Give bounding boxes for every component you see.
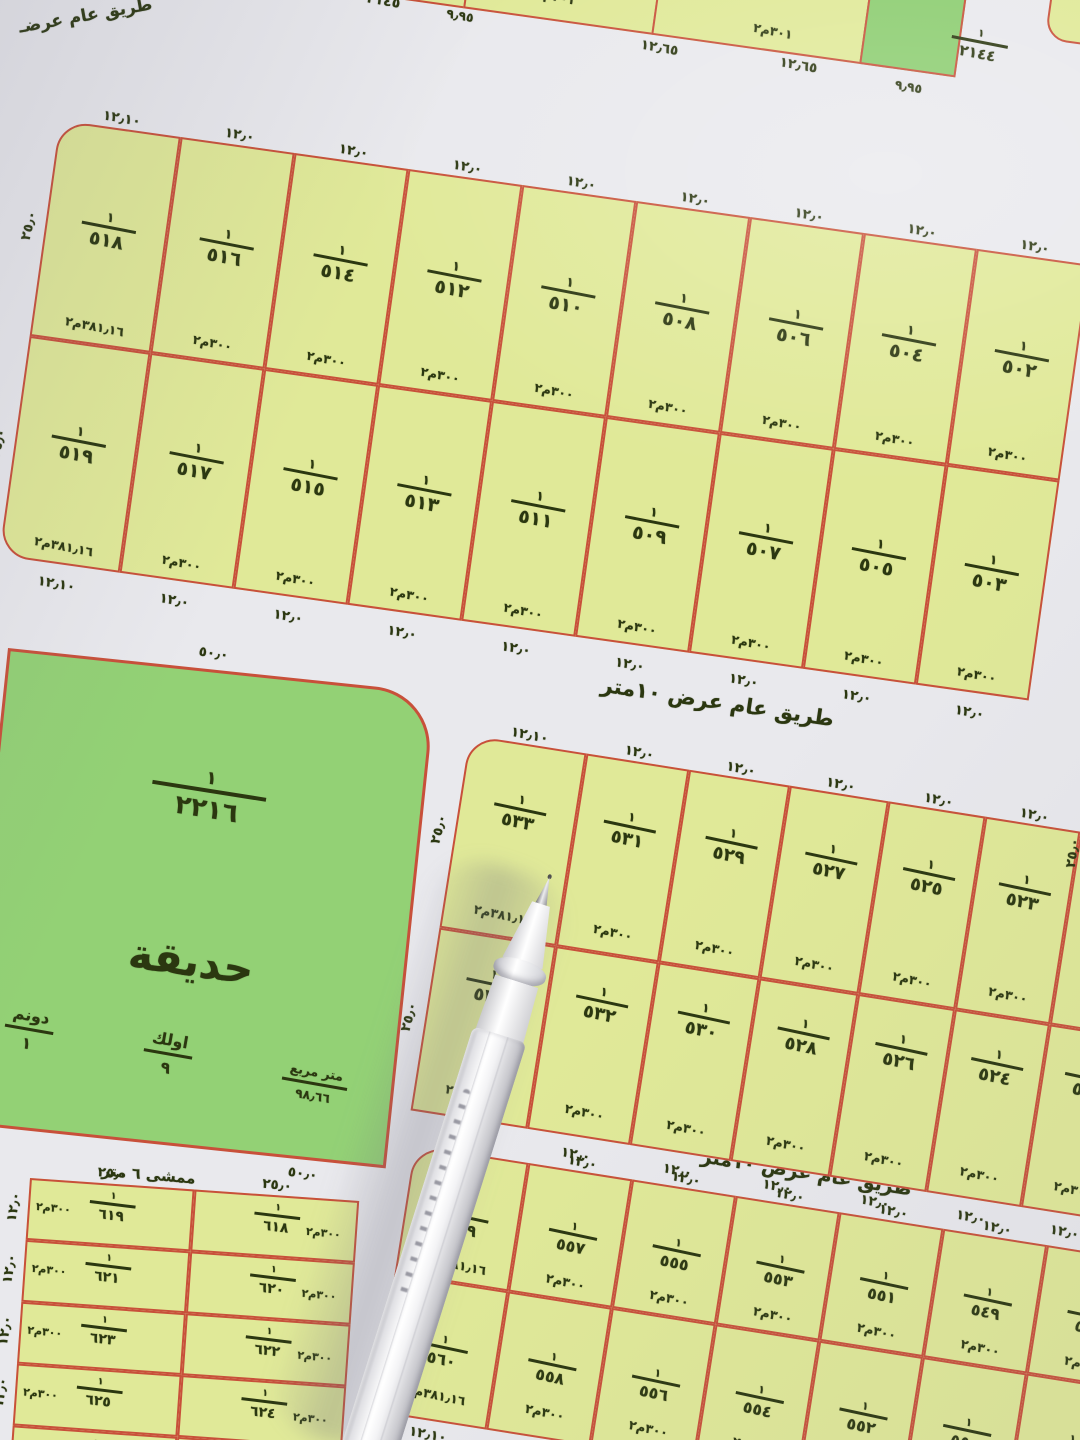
plot-cell: ١٦٢٣٣٠٠م٢: [17, 1302, 186, 1375]
dimension-label: ١٢٫٠: [385, 622, 417, 643]
plot-number: ١٥٢٨: [773, 1013, 833, 1061]
plot-number: ١٥١٩: [47, 421, 108, 470]
plot-area-label: ٣٠٠م٢: [665, 1117, 707, 1140]
plot-area-label: ٣٠٠م٢: [35, 1200, 71, 1217]
plot-number: ١٥٠٣: [960, 549, 1021, 598]
unit-olk: اولك ٩: [140, 1027, 196, 1082]
plot-area-label: ٣٠٠م٢: [305, 348, 347, 370]
dimension-label: ١٢٫٠: [679, 189, 711, 210]
plot-area-label: ٣٠٠م٢: [793, 953, 835, 976]
plot-cell: ١٥٥١٣٠٠م٢: [819, 1212, 943, 1357]
plot-number: ١٥٥٠: [939, 1412, 994, 1440]
plot-area-label: ٣٠٠م٢: [765, 1132, 807, 1155]
dimension-label: ٢٥٫٠: [427, 812, 450, 845]
dimension-label: ١٢٫٠: [0, 1253, 20, 1285]
fraction-denominator: ٥٤٧: [1063, 1310, 1080, 1342]
plot-number: ١٥٢٩: [701, 822, 761, 870]
plot-number: ١٥٥٣: [752, 1249, 807, 1293]
plot-number: ١٥٢٤: [967, 1043, 1027, 1091]
plot-number: ١٥١٠: [537, 271, 598, 320]
plot-cell: ١٥٥٦٣٠٠م٢: [590, 1308, 716, 1440]
dimension-label: ١٢٫٠: [953, 702, 985, 723]
plot-cell: ١٥٥٤٣٠٠م٢: [694, 1324, 820, 1440]
plot-area-label: ٣٠٠م٢: [524, 1401, 566, 1424]
dimension-label: ١٢٫٠: [906, 221, 938, 242]
plot-number: ١٥١٦: [195, 223, 256, 272]
fraction-denominator: ٦٢١: [83, 1262, 131, 1287]
block-500s-north: ١٥١٨٣٨١٫١٦م٢١٥١٩٣٨١٫١٦م٢١٢٫١٠١٢٫١٠١٥١٦٣٠…: [0, 120, 1080, 706]
plot-number: ١٥٣١: [599, 806, 659, 854]
plot-number: ١٦٢٠: [248, 1262, 297, 1298]
plot-number: ١٥٠٦: [765, 303, 826, 352]
plot-number: ١٥٢٦: [871, 1028, 931, 1076]
plot-number: ١٥٢٢: [1061, 1058, 1080, 1106]
plot-number: ١٥١٣: [393, 469, 454, 518]
plot-cell: ١٥٥٨٣٠٠م٢: [486, 1291, 612, 1440]
plot-number-partial: ٣١٤٥: [365, 0, 401, 12]
plot-area-label: ٣٠٠م٢: [1052, 1178, 1080, 1201]
plot-number: ١٥٥٧: [545, 1216, 600, 1260]
plot-area-label: ٣٠٠م٢: [647, 396, 689, 418]
dimension-label: ١٢٫٠: [0, 1376, 11, 1408]
road-label: طريق عام عرضـ: [17, 0, 153, 38]
plot-number: ١٥٤٨: [1043, 1429, 1080, 1440]
plot-number: ١٦٢٧: [70, 1437, 119, 1440]
plot-cell: [1044, 0, 1080, 66]
dimension-label: ١٢٫٠: [727, 670, 759, 691]
fraction-denominator: ٦١٩: [88, 1200, 136, 1225]
dimension-label: ١٢٫٠: [451, 157, 483, 178]
plot-number: ١٥٠٥: [847, 533, 908, 582]
dimension-label: ١٢٫٠: [793, 205, 825, 226]
plot-area-label: ٣٠٠م٢: [956, 663, 998, 685]
plot-number: ١٥١٥: [279, 453, 340, 502]
cadastral-map-photo: ٣٠١م٢ ٣٠١م٢ ١٢٫٦٥ ١٢٫٦٥ ٩٫٩٥ ٣١٤٥ ٩٫٩٥ ١…: [0, 0, 1080, 1440]
plot-number: ١٥٥٦: [628, 1363, 683, 1407]
plot-area-label: ٣٠٠م٢: [592, 921, 634, 944]
plot-number: ١٥٥٤: [732, 1379, 787, 1423]
dimension-label: ١٢٫٠: [565, 173, 597, 194]
plot-area-label: ٣٠٠م٢: [959, 1336, 1001, 1359]
plot-number: ١٦٢٥: [75, 1375, 124, 1411]
plot-area-label: ٣٠٠م٢: [616, 616, 658, 638]
plot-number: ١٥١١: [507, 485, 568, 534]
dimension-label: ٥٠٫٠: [198, 644, 230, 664]
plot-area-label: ٣٠٠م٢: [1063, 1352, 1080, 1375]
dimension-label: ١٢٫٠: [840, 686, 872, 707]
plot-number: ١٥٣٣: [490, 789, 550, 837]
plot-number: ١٥١٨: [77, 207, 138, 256]
plot-area-label: ٣٠٠م٢: [891, 968, 933, 991]
plot-area-label: ٣٠٠م٢: [31, 1262, 67, 1279]
dimension-label: ١٢٫٠: [223, 125, 255, 146]
plot-area-label: ٣٠٠م٢: [502, 600, 544, 622]
plot-area-label: ٣٠٠م٢: [563, 1101, 605, 1124]
plot-area-label: ٣٠٠م٢: [648, 1287, 690, 1310]
dimension-label: ٢٥٫٠: [18, 209, 41, 242]
dimension-label: ١٢٫٠: [1019, 236, 1051, 257]
pen-ball-point: [547, 874, 552, 880]
dimension-label: ١٢٫٠: [337, 141, 369, 162]
fraction-denominator: ٦٢٥: [75, 1385, 123, 1410]
plot-number: ١٦٢٣: [79, 1313, 128, 1349]
plot-cell: ١٦٢١٣٠٠م٢: [21, 1240, 190, 1313]
plot-area-label: ٣٠٠م٢: [388, 584, 430, 606]
plot-number: ١٥٤٩: [960, 1282, 1015, 1326]
plot-cell: ١٥٥٧٣٠٠م٢: [508, 1163, 632, 1308]
dimension-label: ١٢٫٦٥: [639, 37, 679, 59]
plot-area-label: ٣٠٠م٢: [761, 412, 803, 434]
fraction-denominator: ٦٢٠: [248, 1273, 296, 1298]
dimension-label: ١٢٫٠: [499, 638, 531, 659]
plot-number: ١٥٢٣: [994, 869, 1054, 917]
plot-area-label: ٣٠٠م٢: [27, 1324, 63, 1341]
dimension-label: ١٢٫٠: [0, 1315, 16, 1347]
dimension-label: ١٢٫٠: [613, 654, 645, 675]
fraction-numerator: ١: [1047, 1429, 1080, 1440]
plot-area-label: ٣٠٠م٢: [874, 428, 916, 450]
plot-cell: ١٥٤٩٣٠٠م٢: [923, 1229, 1047, 1374]
plot-area-label: ٣٠٠م٢: [544, 1270, 586, 1293]
plot-number: ١٥٠٢: [990, 335, 1051, 384]
plot-area-label: ٣٠٠م٢: [863, 1148, 905, 1171]
fraction-denominator: ٦١٨: [252, 1211, 300, 1236]
plot-number: ١٦١٩: [88, 1189, 137, 1225]
plot-number: ١٥٢٧: [801, 838, 861, 886]
plot-area-label: ٣٠٠م٢: [731, 1433, 773, 1440]
dimension-label: ١٢٫٠: [1048, 1221, 1080, 1242]
dimension-label: ١٢٫٠: [3, 1191, 24, 1223]
fraction-denominator: ٥٢٢: [1061, 1072, 1080, 1106]
map-layer: ٣٠١م٢ ٣٠١م٢ ١٢٫٦٥ ١٢٫٦٥ ٩٫٩٥ ٣١٤٥ ٩٫٩٥ ١…: [0, 0, 1080, 1440]
plot-area-label: ٣٠٠م٢: [275, 568, 317, 590]
plot-area-label: ٣٨١٫١٦م٢: [33, 533, 94, 559]
plot-area-label: ٣٠٠م٢: [856, 1320, 898, 1343]
dimension-label: ٩٫٩٥: [894, 77, 924, 97]
plot-number: ١٥١٧: [165, 437, 226, 486]
plot-number: ١٥٣٢: [572, 981, 632, 1029]
plot-number: ١٥٠٤: [877, 319, 938, 368]
road-label: طريق عام عرض ١٠متر: [600, 673, 836, 731]
plot-number: ١٥٤٧: [1063, 1298, 1080, 1342]
plot-number: ١٥٣٠: [673, 997, 733, 1045]
plot-area-label: ٣٠٠م٢: [730, 632, 772, 654]
plot-number: ١٥٠٩: [621, 501, 682, 550]
plot-number: ١٦٢١: [83, 1251, 132, 1287]
plot-number: ١٥٥٢: [835, 1396, 890, 1440]
plot-number: ١٦١٨: [252, 1201, 301, 1237]
plot-cell: ١٥٥٥٣٠٠م٢: [612, 1179, 736, 1324]
plot-area-label: ٣٠٠م٢: [22, 1385, 58, 1402]
plot-number: ١٥٥٨: [524, 1346, 579, 1390]
plot-area-label: ٣٠٠م٢: [161, 552, 203, 574]
dimension-label: ١٢٫٦٥: [778, 54, 818, 76]
top-plot-strip: ٣٠١م٢ ٣٠١م٢ ١٢٫٦٥ ١٢٫٦٥ ٩٫٩٥ ٣١٤٥ ٩٫٩٥ ١…: [305, 0, 1080, 120]
plot-cell: ١٦٢٥٣٠٠م٢: [13, 1364, 182, 1437]
plot-cell: ١٥٥٢٣٠٠م٢: [797, 1341, 923, 1440]
plot-area-label: ٣٠٠م٢: [192, 332, 234, 354]
plot-area-label: ٣٠٠م٢: [533, 380, 575, 402]
dimension-label: ١٢٫١٠: [36, 573, 76, 595]
plot-area-label: ٣٠٠م٢: [987, 983, 1029, 1006]
dimension-label: ٢٥٫٠: [0, 427, 10, 460]
plot-number: ١٥٥١: [856, 1265, 911, 1309]
plot-area-label: ٣٠٠م٢: [987, 443, 1029, 465]
plot-cell: ١٦١٩٣٠٠م٢: [26, 1178, 195, 1251]
plot-area-label: ٣٠٠م٢: [959, 1163, 1001, 1186]
plot-area-label: ٣٠٠م٢: [419, 364, 461, 386]
unit-dunum: دونم ١: [1, 1002, 57, 1057]
plot-area-label: ٣٠٠م٢: [694, 937, 736, 960]
fraction-denominator: ٦٢٣: [79, 1324, 127, 1349]
dimension-label: ١٢٫٠: [272, 606, 304, 627]
plot-cell: ١٥٥٣٣٠٠م٢: [716, 1196, 840, 1341]
plot-area-label: ٣٠٠م٢: [843, 647, 885, 669]
plot-number: ١٥٢٥: [899, 853, 959, 901]
plot-number: ١٥١٢: [423, 255, 484, 304]
plot-number: ١٥٥٥: [648, 1232, 703, 1276]
plot-area-label: ٣٨١٫١٦م٢: [64, 313, 125, 339]
plot-number: ١٥٠٧: [735, 517, 796, 566]
pen-metal-tip: [535, 875, 555, 906]
dimension-label: ١٢٫٠: [158, 590, 190, 611]
plot-area-label: ٣٠٠م٢: [752, 1303, 794, 1326]
plot-area-label: ٣٠٠م٢: [628, 1417, 670, 1440]
fraction-numerator: ١: [73, 1437, 119, 1440]
plot-number: ١٥٠٨: [651, 287, 712, 336]
plot-number: ١٥١٤: [309, 239, 370, 288]
